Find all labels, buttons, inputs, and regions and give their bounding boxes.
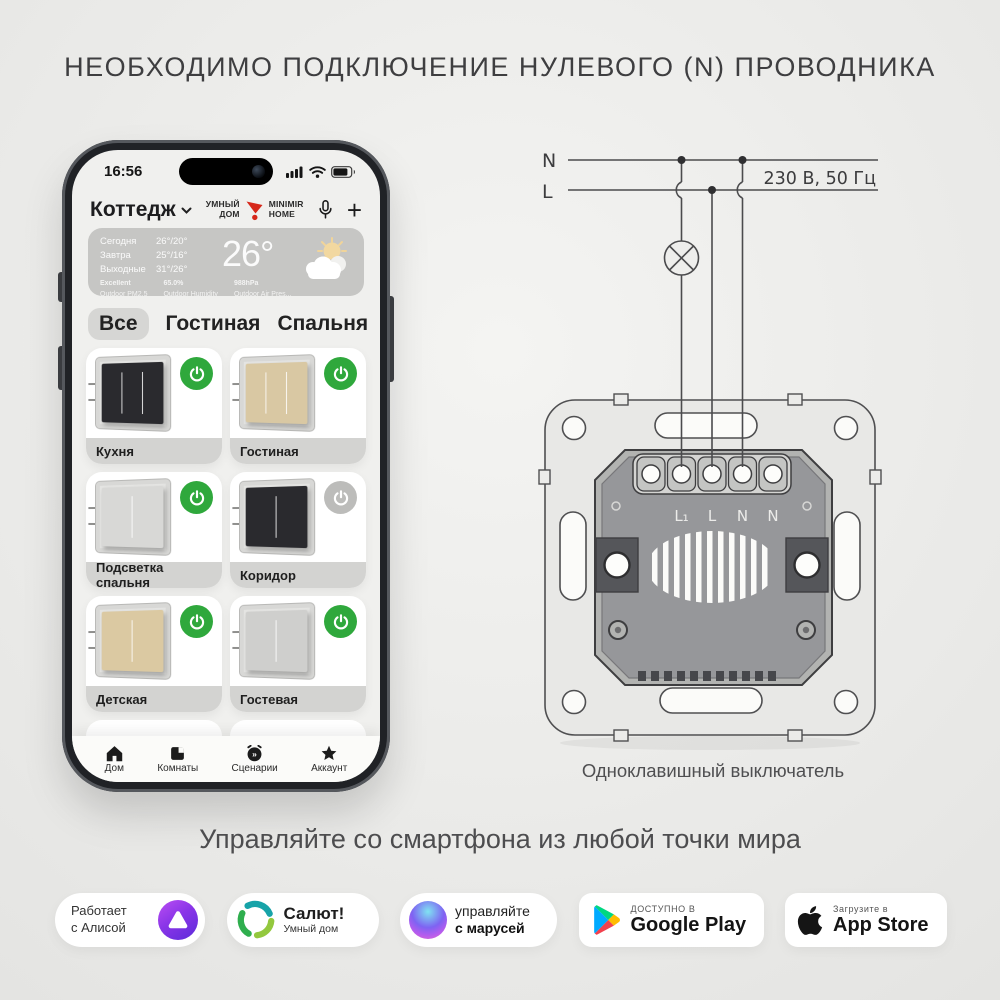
device-card-kitchen[interactable]: Кухня [86, 348, 222, 464]
weather-stat: 988hPaOutdoor Air Pres... [234, 279, 292, 296]
salut-title: Салют! [284, 905, 345, 923]
forecast-day: Сегодня [100, 235, 156, 249]
power-toggle[interactable] [180, 481, 213, 514]
nav-scenes[interactable]: » Сценарии [232, 745, 278, 774]
alice-line2: с Алисой [71, 920, 126, 935]
nav-label: Сценарии [232, 763, 278, 774]
current-temperature: 26° [222, 233, 273, 275]
terminal [642, 465, 660, 483]
plate-screw-hole [563, 691, 586, 714]
device-card-guest-room[interactable]: Гостевая [230, 596, 366, 712]
home-name-label: Коттедж [90, 198, 176, 222]
alice-icon [158, 900, 198, 940]
diagram-caption: Одноклавишный выключатель [548, 760, 878, 782]
astore-line1: Загрузите в [833, 904, 929, 914]
weather-stat: 65.0%Outdoor Humidity [163, 279, 217, 296]
weather-stat: ExcellentOutdoor PM2.5 [100, 279, 147, 296]
power-toggle[interactable] [180, 357, 213, 390]
google-play-badge[interactable]: ДОСТУПНО В Google Play [579, 893, 764, 947]
wifi-icon [309, 166, 326, 178]
device-name: Детская [86, 686, 222, 712]
account-star-icon [320, 745, 338, 762]
switch-frame [239, 602, 315, 680]
app-store-badge[interactable]: Загрузите в App Store [785, 893, 947, 947]
stat-value: 988hPa [234, 279, 292, 290]
junction-dot [739, 156, 747, 164]
marusia-line2: с марусей [455, 920, 530, 938]
power-toggle[interactable] [324, 357, 357, 390]
add-device-button[interactable]: + [347, 200, 362, 220]
svg-text:»: » [252, 748, 257, 758]
gplay-line2: Google Play [631, 914, 747, 936]
plate-slot [560, 512, 586, 600]
wiring-diagram: N L 230 В, 50 Гц [530, 140, 930, 800]
phone-mockup: 16:56 [62, 140, 390, 792]
switch-image [239, 478, 315, 556]
nav-home[interactable]: Дом [105, 745, 124, 774]
home-selector[interactable]: Коттедж [90, 198, 193, 222]
rooms-icon [169, 745, 186, 762]
signal-icon [286, 166, 304, 178]
switch-plate [102, 610, 164, 672]
microphone-icon[interactable] [317, 199, 334, 221]
terminal [764, 465, 782, 483]
front-camera [252, 165, 265, 178]
page-title: НЕОБХОДИМО ПОДКЛЮЧЕНИЕ НУЛЕВОГО (N) ПРОВ… [0, 52, 1000, 83]
terminal-label-l1: L₁ [674, 507, 688, 525]
lamp-symbol [665, 241, 699, 275]
dynamic-island [179, 158, 273, 185]
nav-account[interactable]: Аккаунт [311, 745, 347, 774]
forecast-temp: 31°/26° [156, 263, 187, 277]
ecosystem-badges: Работает с Алисой Салют! Умный дом [55, 892, 947, 948]
marusia-line1: управляйте [455, 903, 530, 921]
forecast-day: Завтра [100, 249, 156, 263]
salut-icon [235, 899, 277, 941]
terminal [734, 465, 752, 483]
stat-label: Outdoor Air Pres... [234, 291, 292, 296]
switch-frame [239, 478, 315, 556]
device-grid: Кухня Гостиная [86, 348, 366, 738]
device-name: Кухня [86, 438, 222, 464]
astore-line2: App Store [833, 914, 929, 936]
weather-widget[interactable]: Сегодня26°/20° Завтра25°/16° Выходные31°… [88, 228, 364, 296]
l-line-label: L [542, 181, 553, 203]
plate-screw-hole [835, 691, 858, 714]
gplay-line1: ДОСТУПНО В [631, 904, 747, 914]
voltage-label: 230 В, 50 Гц [763, 169, 876, 189]
fixing-screw [605, 553, 630, 578]
bottom-nav: Дом Комнаты » Сценарии [72, 736, 380, 782]
terminal-label-n1: N [737, 507, 748, 525]
switch-image [95, 354, 171, 432]
volume-down-button [58, 346, 62, 390]
alice-badge[interactable]: Работает с Алисой [55, 893, 205, 947]
salut-badge[interactable]: Салют! Умный дом [227, 893, 379, 947]
device-card-living-room[interactable]: Гостиная [230, 348, 366, 464]
device-name: Гостевая [230, 686, 366, 712]
nav-label: Дом [105, 763, 124, 774]
marusia-icon [409, 901, 447, 939]
stat-label: Outdoor PM2.5 [100, 291, 147, 296]
terminal-label-n2: N [767, 507, 778, 525]
home-icon [105, 745, 124, 762]
brand-right-2: HOME [269, 209, 295, 219]
page-subtitle: Управляйте со смартфона из любой точки м… [0, 824, 1000, 855]
device-card-corridor[interactable]: Коридор [230, 472, 366, 588]
fixing-screw [795, 553, 820, 578]
tab-all[interactable]: Все [88, 308, 149, 340]
brand-logo: УМНЫЙ ДОМ MINIMIR HOME [206, 199, 304, 221]
device-name: Подсветка спальня [86, 562, 222, 588]
switch-frame [239, 354, 315, 432]
chevron-down-icon [180, 206, 193, 215]
switch-plate [246, 610, 308, 672]
plate-slot [660, 688, 762, 713]
switch-frame [95, 478, 171, 556]
device-name: Гостиная [230, 438, 366, 464]
plate-screw-hole [835, 417, 858, 440]
forecast-temp: 26°/20° [156, 235, 187, 249]
nav-label: Аккаунт [311, 763, 347, 774]
terminal [673, 465, 691, 483]
switch-mechanism: L₁ L N N [539, 394, 881, 750]
power-toggle[interactable] [180, 605, 213, 638]
power-toggle[interactable] [324, 605, 357, 638]
clock: 16:56 [104, 163, 142, 180]
brand-left-2: ДОМ [219, 209, 239, 219]
junction-dot [708, 186, 716, 194]
power-side-button [390, 296, 394, 382]
n-line-label: N [542, 150, 556, 172]
switch-image [239, 602, 315, 680]
switch-image [95, 478, 171, 556]
salut-subtitle: Умный дом [284, 923, 345, 935]
power-toggle[interactable] [324, 481, 357, 514]
plate-screw-hole [563, 417, 586, 440]
marusia-badge[interactable]: управляйте с марусей [400, 893, 557, 947]
tab-living-room[interactable]: Гостиная [166, 312, 261, 336]
stat-label: Outdoor Humidity [163, 291, 217, 296]
battery-icon [331, 166, 356, 178]
switch-plate [102, 362, 164, 424]
terminal-label-l: L [708, 507, 717, 525]
switch-image [95, 602, 171, 680]
scenarios-icon: » [245, 745, 264, 762]
weather-icon [298, 236, 350, 287]
room-tabs: Все Гостиная Спальня Коридор [88, 307, 380, 341]
switch-image [239, 354, 315, 432]
switch-plate [102, 486, 164, 548]
switch-frame [95, 602, 171, 680]
tab-bedroom[interactable]: Спальня [277, 312, 368, 336]
nav-rooms[interactable]: Комнаты [157, 745, 198, 774]
volume-up-button [58, 272, 62, 302]
junction-dot [678, 156, 686, 164]
nav-label: Комнаты [157, 763, 198, 774]
brand-right-1: MINIMIR [269, 199, 304, 209]
device-card-bedroom-light[interactable]: Подсветка спальня [86, 472, 222, 588]
phone-screen: 16:56 [72, 150, 380, 782]
app-header: Коттедж УМНЫЙ ДОМ MINIMIR [72, 198, 380, 222]
device-card-kids-room[interactable]: Детская [86, 596, 222, 712]
weather-forecast: Сегодня26°/20° Завтра25°/16° Выходные31°… [100, 235, 212, 276]
alice-line1: Работает [71, 903, 127, 918]
page: НЕОБХОДИМО ПОДКЛЮЧЕНИЕ НУЛЕВОГО (N) ПРОВ… [0, 0, 1000, 1000]
stat-value: Excellent [100, 279, 147, 290]
apple-icon [797, 904, 823, 937]
forecast-day: Выходные [100, 263, 156, 277]
terminal [703, 465, 721, 483]
switch-plate [246, 362, 308, 424]
brand-left-1: УМНЫЙ [206, 199, 240, 209]
stat-value: 65.0% [163, 279, 217, 290]
switch-plate [246, 486, 308, 548]
google-play-icon [591, 902, 621, 938]
plate-slot [834, 512, 860, 600]
switch-frame [95, 354, 171, 432]
brand-mark-icon [245, 199, 264, 221]
forecast-temp: 25°/16° [156, 249, 187, 263]
device-name: Коридор [230, 562, 366, 588]
